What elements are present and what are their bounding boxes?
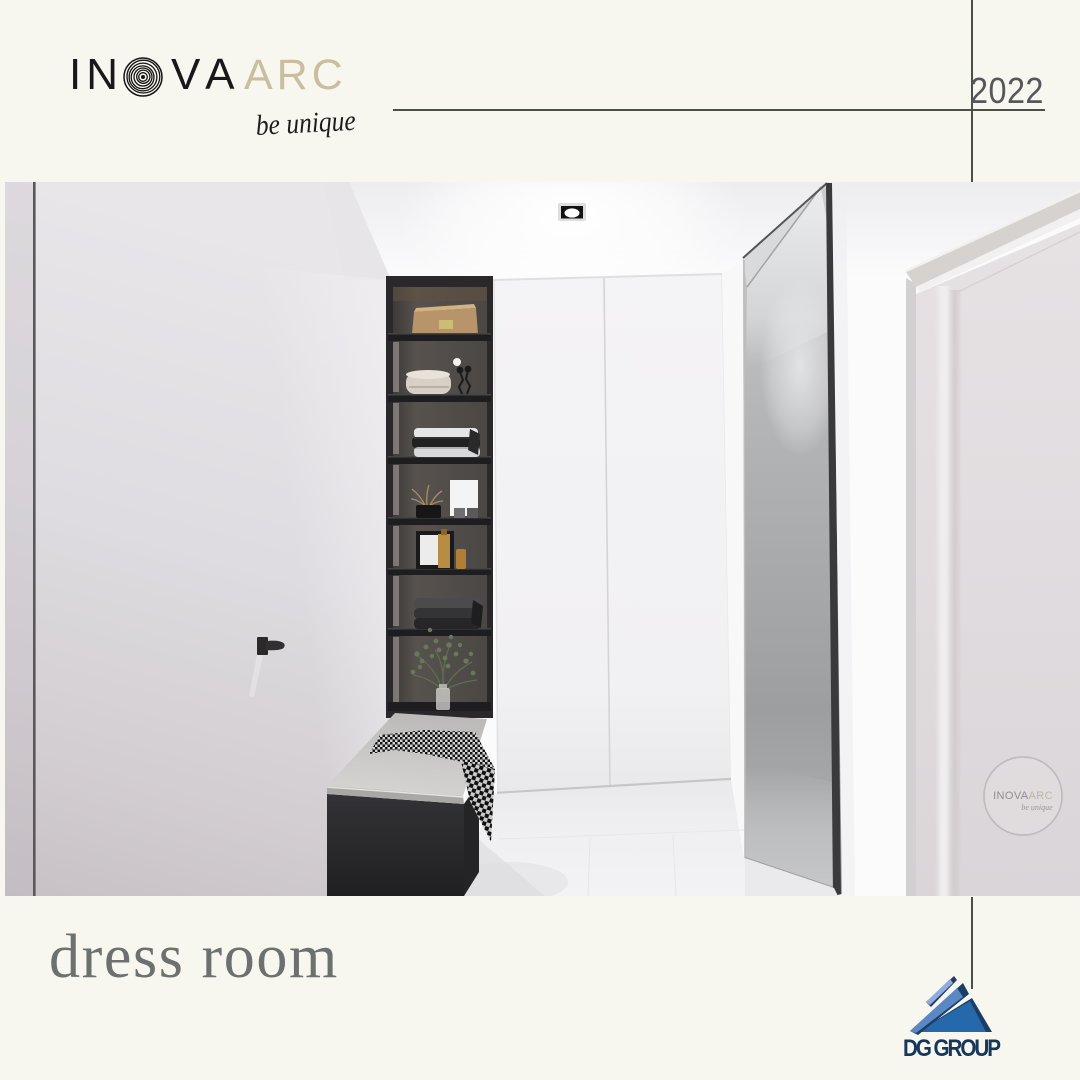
svg-text:DG GROUP: DG GROUP	[903, 1035, 1001, 1062]
svg-text:INOVAARC: INOVAARC	[993, 790, 1053, 802]
svg-text:be unique: be unique	[1021, 803, 1053, 812]
